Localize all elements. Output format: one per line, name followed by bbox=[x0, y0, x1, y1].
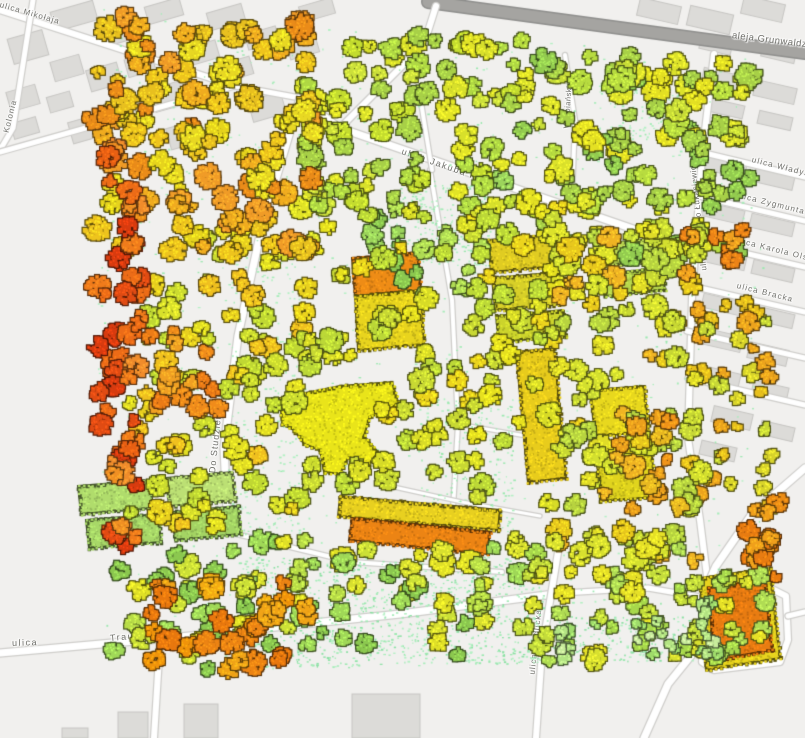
lidar-pointcloud-canvas bbox=[0, 0, 805, 738]
map-viewport[interactable]: ulica MikołajaKoloniaaleja Grunwaldzkaul… bbox=[0, 0, 805, 738]
